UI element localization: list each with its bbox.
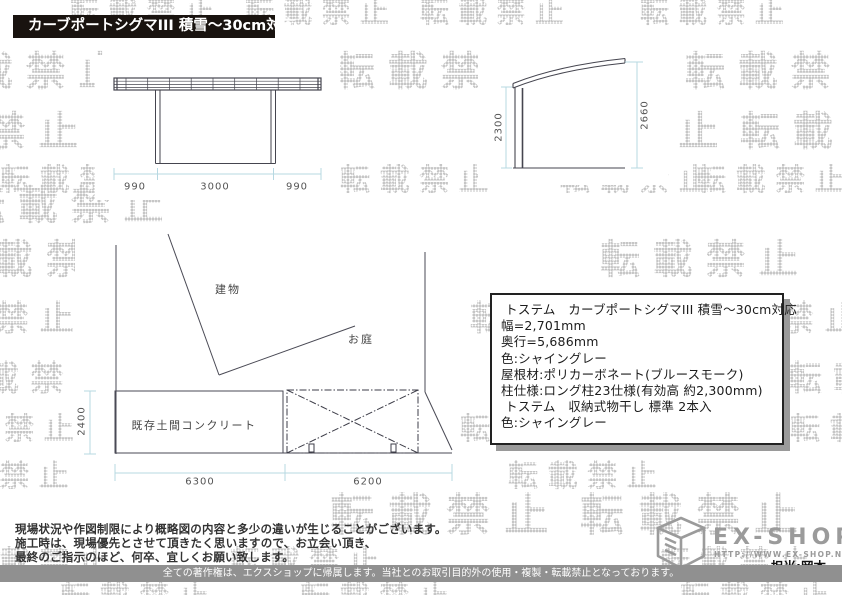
spec-line: 奥行=5,686mm [501, 334, 773, 350]
note-line: 施工時は、現場優先とさせて頂きたく思いますので、お立会い頂き、 [15, 536, 447, 550]
note-line: 現場状況や作図制限により概略図の内容と多少の違いが生じることがございます。 [15, 522, 447, 536]
sheet-content: カーブポートシグマIII 積雪〜30cm対応 [0, 0, 842, 595]
dim-3000: 3000 [200, 182, 229, 193]
label-building: 建物 [215, 281, 241, 297]
site-plan-lines [75, 226, 460, 492]
drawing-sheet: 転載禁止転載禁止転載禁止転載禁止転載禁止転載禁止転載禁止転載禁止転載禁止転載禁止… [0, 0, 842, 595]
dim-6200: 6200 [353, 477, 382, 488]
dim-2660: 2660 [640, 100, 651, 129]
brand-name: EX-SHOP [713, 525, 842, 550]
spec-line: トステム カーブポートシグマIII 積雪〜30cm対応 [501, 302, 773, 318]
dim-990-left: 990 [124, 182, 146, 193]
dim-990-right: 990 [286, 182, 308, 193]
spec-line: 幅=2,701mm [501, 318, 773, 334]
spec-box: トステム カーブポートシグマIII 積雪〜30cm対応 幅=2,701mm 奥行… [490, 293, 784, 445]
brand-block: EX-SHOP HTTP://WWW.EX-SHOP.NET 担当:岡本 [650, 512, 830, 568]
front-elevation-drawing: 990 3000 990 [95, 55, 340, 200]
front-elevation-lines [95, 55, 340, 200]
label-concrete: 既存土間コンクリート [132, 417, 257, 433]
spec-line: 色:シャイングレー [501, 351, 773, 367]
spec-line: 柱仕様:ロング柱23仕様(有効高 約2,300mm) [501, 383, 773, 399]
dim-6300: 6300 [185, 477, 214, 488]
note-line: 最終のご指示のほど、何卒、宜しくお願い致します。 [15, 550, 447, 564]
spec-line: 屋根材:ポリカーボネート(ブルースモーク) [501, 367, 773, 383]
side-elevation-drawing: 2300 2660 [478, 48, 668, 185]
site-plan-drawing: 建物 お庭 既存土間コンクリート 2400 6300 6200 [75, 226, 460, 492]
ex-shop-cube-icon [656, 516, 706, 570]
dim-2400: 2400 [77, 406, 88, 435]
spec-line: トステム 収納式物干し 標準 2本入 [501, 399, 773, 415]
copyright-bar: 全ての著作権は、エクスショップに帰属します。当社とのお取引目的外の使用・複製・転… [0, 565, 842, 582]
site-notes: 現場状況や作図制限により概略図の内容と多少の違いが生じることがございます。 施工… [15, 522, 447, 564]
label-garden: お庭 [348, 331, 374, 347]
spec-line: 色:シャイングレー [501, 415, 773, 431]
page-title: カーブポートシグマIII 積雪〜30cm対応 [13, 15, 275, 38]
dim-2300: 2300 [494, 112, 505, 141]
